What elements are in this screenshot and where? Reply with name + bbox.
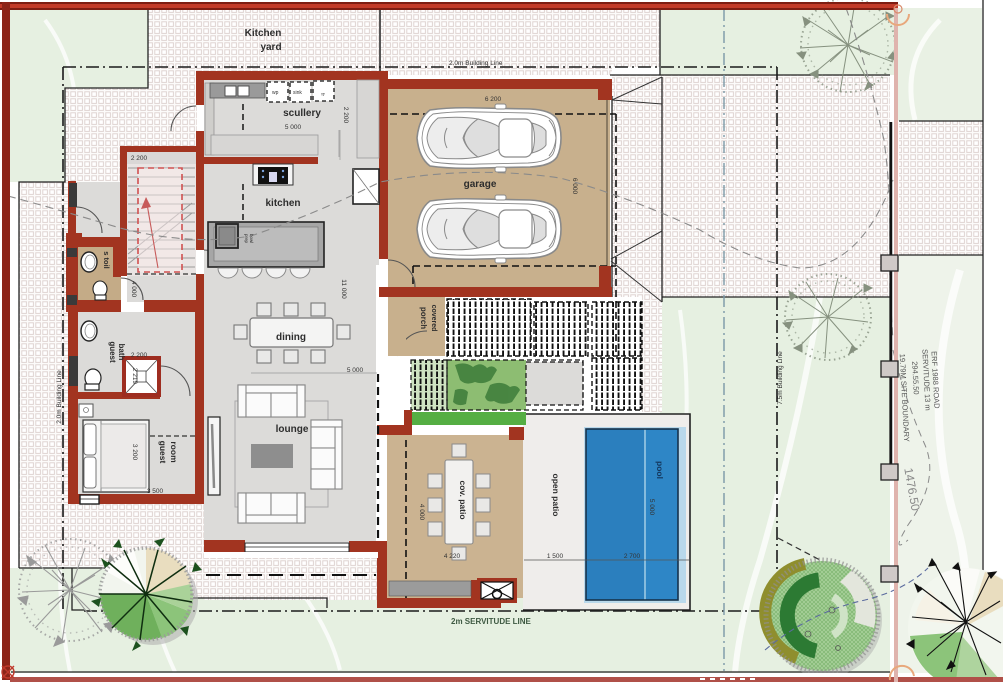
svg-text:cov. patio: cov. patio: [458, 480, 468, 519]
svg-text:fr: fr: [319, 93, 325, 96]
svg-text:s toil: s toil: [102, 251, 111, 269]
svg-text:294.55.50: 294.55.50: [910, 361, 921, 395]
svg-text:6 000: 6 000: [571, 178, 578, 195]
svg-text:bowl: bowl: [249, 234, 254, 243]
svg-text:guest: guest: [108, 341, 117, 363]
svg-text:covered: covered: [430, 305, 437, 332]
svg-text:dining: dining: [276, 332, 306, 343]
svg-text:open patio: open patio: [551, 474, 561, 517]
svg-text:4 000: 4 000: [130, 281, 137, 298]
svg-text:5 000: 5 000: [285, 124, 302, 131]
svg-text:5 000: 5 000: [347, 367, 364, 374]
svg-text:3 200: 3 200: [131, 444, 138, 461]
svg-text:2m SERVITUDE LINE: 2m SERVITUDE LINE: [451, 617, 532, 626]
svg-text:sink: sink: [293, 90, 302, 96]
svg-text:2 200: 2 200: [131, 352, 148, 359]
svg-text:scullery: scullery: [283, 108, 321, 119]
svg-text:2 700: 2 700: [624, 553, 641, 560]
svg-text:3 500: 3 500: [147, 488, 164, 495]
svg-text:7.5m Building Line: 7.5m Building Line: [777, 351, 784, 405]
svg-text:lounge: lounge: [276, 424, 309, 435]
svg-text:wp: wp: [272, 90, 279, 96]
svg-text:2.0m Building Line: 2.0m Building Line: [449, 60, 503, 67]
svg-text:5 000: 5 000: [648, 499, 655, 516]
svg-text:6 200: 6 200: [485, 96, 502, 103]
svg-text:pool: pool: [655, 461, 665, 479]
svg-text:yard: yard: [260, 42, 281, 53]
svg-text:bath: bath: [117, 344, 126, 361]
svg-text:porch: porch: [419, 307, 428, 329]
svg-text:garage: garage: [464, 179, 497, 190]
svg-text:guest: guest: [158, 441, 168, 464]
svg-text:4 220: 4 220: [444, 553, 461, 560]
svg-text:Kitchen: Kitchen: [245, 28, 282, 39]
svg-text:2 200: 2 200: [342, 107, 349, 124]
svg-text:kitchen: kitchen: [265, 198, 300, 209]
svg-text:1 500: 1 500: [547, 553, 564, 560]
svg-text:prep: prep: [244, 234, 249, 244]
svg-text:11 000: 11 000: [340, 279, 347, 299]
svg-text:4 000: 4 000: [418, 504, 425, 521]
svg-text:2 219: 2 219: [131, 368, 138, 385]
svg-text:2 200: 2 200: [131, 155, 148, 162]
svg-text:2.0m Building Line: 2.0m Building Line: [56, 370, 63, 424]
svg-text:room: room: [169, 441, 179, 463]
